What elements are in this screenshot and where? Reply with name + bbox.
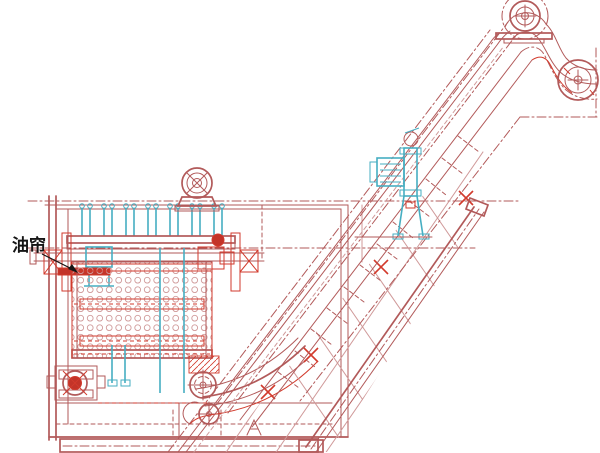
- head-pulley: [496, 0, 552, 43]
- tail-sprockets: [188, 356, 221, 426]
- discharge-roller: [558, 60, 598, 100]
- machine-diagram: 油帘: [0, 0, 600, 453]
- head-discharge-curve: [505, 13, 597, 99]
- perforated-filter-panel: [72, 262, 212, 358]
- technical-drawing-canvas: 油帘: [0, 0, 600, 453]
- oil-curtain-label: 油帘: [12, 235, 46, 256]
